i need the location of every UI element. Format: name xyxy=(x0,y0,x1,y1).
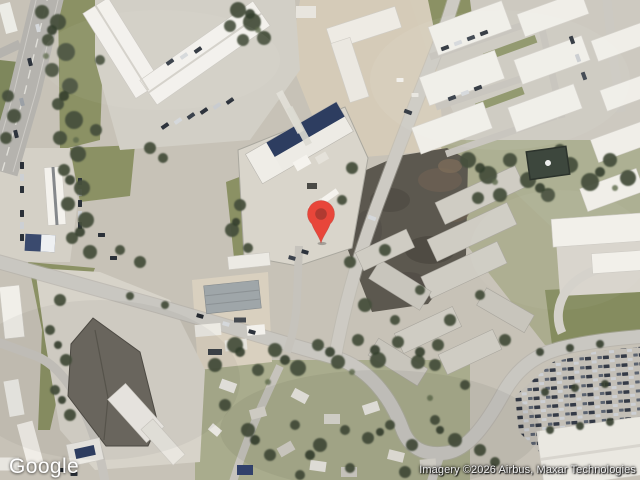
google-logo[interactable]: Google xyxy=(9,455,79,479)
pin-shadow xyxy=(318,242,327,245)
map-attribution: Imagery ©2026 Airbus, Maxar Technologies xyxy=(419,464,636,477)
map-view: Google Imagery ©2026 Airbus, Maxar Techn… xyxy=(0,0,640,480)
retention-pond xyxy=(526,146,570,179)
pin-inner-dot xyxy=(315,208,327,220)
pin-body xyxy=(308,201,335,243)
gray-roof-building xyxy=(204,280,262,314)
location-pin-icon[interactable] xyxy=(303,193,339,247)
map-canvas[interactable]: Google Imagery ©2026 Airbus, Maxar Techn… xyxy=(0,0,640,480)
